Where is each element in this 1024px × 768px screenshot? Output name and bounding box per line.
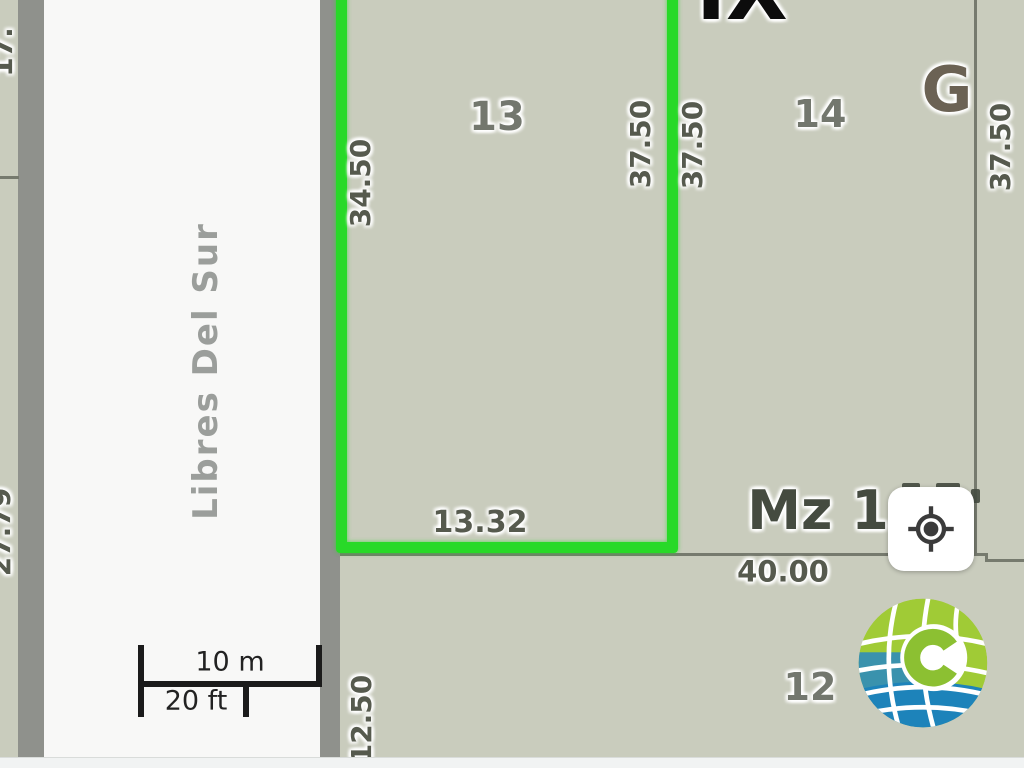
crosshair-target-icon: [905, 503, 957, 555]
brand-logo: [856, 596, 990, 730]
zone-label: IX: [696, 0, 787, 32]
block-label: Mz 1: [747, 484, 889, 538]
lot-13-label: 13: [469, 97, 525, 137]
dim-block-bottom: 40.00: [737, 558, 829, 587]
street-name-label: Libres Del Sur: [189, 222, 223, 520]
boundary-right-segment-line: [986, 559, 1024, 562]
lot-14-label: 14: [794, 95, 847, 133]
scale-metric-label: 10 m: [195, 647, 264, 678]
dim-bottom-lot-left: 12.50: [348, 675, 376, 764]
scale-bar-right-tick: [316, 645, 322, 685]
dim-street-top-partial: 17.: [0, 27, 17, 77]
dim-neighbor-left: 37.50: [679, 101, 707, 190]
street-area: [44, 0, 320, 757]
dim-selected-right: 37.50: [627, 100, 655, 189]
left-strip-divider-line: [0, 176, 19, 179]
dim-selected-left: 34.50: [347, 139, 375, 228]
globe-c-logo-icon: [856, 596, 990, 730]
cadastral-map[interactable]: Libres Del Sur IX G Mz 1 13 14 12 34.50 …: [0, 0, 1024, 768]
dim-selected-bottom: 13.32: [433, 508, 528, 538]
scale-bar-feet-tick: [243, 683, 249, 717]
dim-street-bottom-partial: 27.79: [0, 488, 15, 577]
locate-button[interactable]: [888, 487, 974, 571]
lot-12-label: 12: [784, 668, 837, 706]
scale-bar-left-tick: [138, 645, 144, 717]
dim-far-right: 37.50: [987, 103, 1015, 192]
scale-imperial-label: 20 ft: [165, 686, 228, 717]
street-edge-left: [18, 0, 44, 757]
right-boundary-line: [974, 0, 977, 556]
selected-parcel-outline[interactable]: [336, 0, 678, 553]
bottom-edge-bar: [0, 757, 1024, 768]
sector-label: G: [922, 59, 973, 121]
